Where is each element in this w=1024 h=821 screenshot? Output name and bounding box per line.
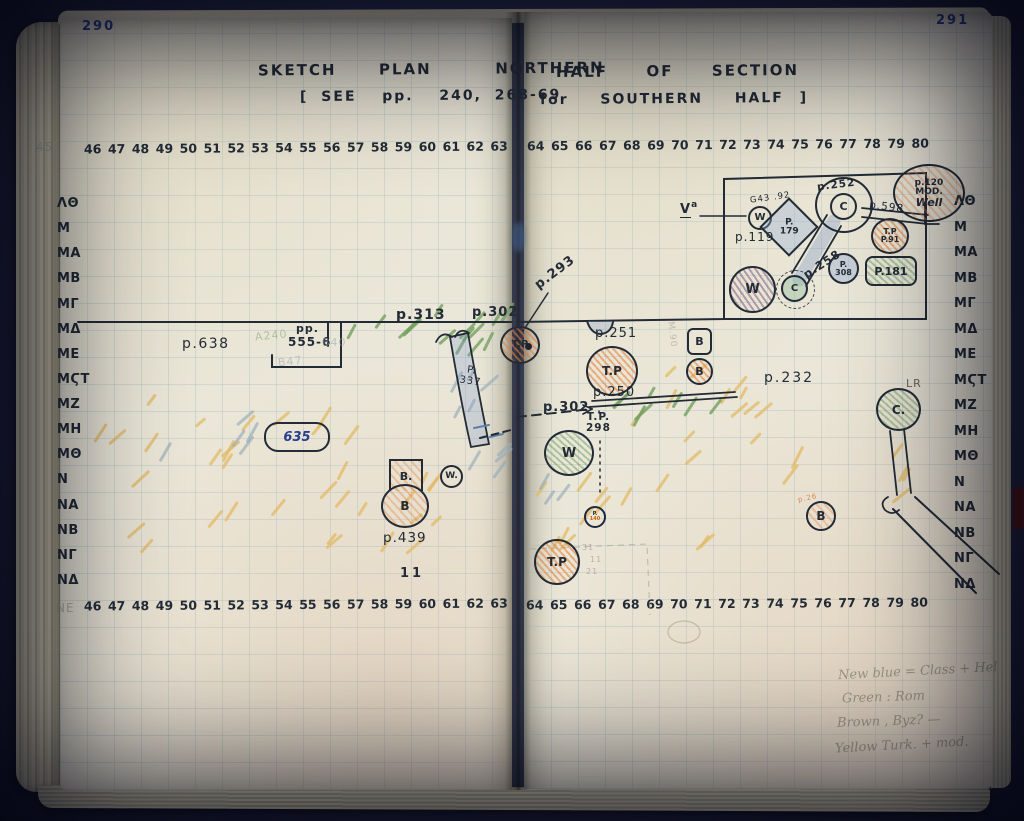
list-item: 46: [84, 598, 102, 613]
list-item: 60: [419, 139, 437, 154]
list-item: ΜΓ: [57, 297, 93, 312]
list-item: ΜΒ: [954, 271, 990, 286]
pencil-mark-11: 11: [590, 556, 602, 564]
pencil-label-b40: B40: [322, 337, 347, 349]
grid-columns-bottom-right: 6465666768697071727374757677787980: [526, 595, 928, 613]
list-item: 64: [527, 138, 545, 153]
list-item: 61: [443, 139, 461, 154]
list-item: 64: [526, 597, 544, 612]
tp-mid-label: T.P: [602, 365, 622, 377]
tick-marks-11: 11: [400, 567, 424, 581]
list-item: ΜΔ: [57, 322, 93, 337]
bookmark-sliver: [1013, 487, 1024, 529]
label-p232: p.232: [764, 371, 814, 386]
list-item: 65: [551, 138, 569, 153]
list-item: 54: [275, 140, 293, 155]
pencil-label-m90: M.90: [665, 321, 678, 348]
feature-tp-bottom: T.P: [534, 539, 580, 585]
c-lr-label: C.: [892, 404, 905, 416]
list-item: 74: [767, 137, 785, 152]
w-green-label: W: [562, 447, 576, 460]
grid-columns-top-right: 6465666768697071727374757677787980: [527, 136, 929, 154]
list-item: 77: [839, 136, 857, 151]
list-item: ΜϚΤ: [954, 373, 990, 388]
list-item: 72: [719, 137, 737, 152]
list-item: ΝΒ: [954, 526, 990, 541]
pencil-mark-21: 21: [586, 568, 598, 576]
feature-flask-body: B: [381, 484, 429, 528]
list-item: 69: [646, 596, 664, 611]
p140-line2: 140: [590, 517, 600, 522]
label-p337: P.337: [459, 365, 484, 389]
list-item: 71: [695, 137, 713, 152]
list-item: ΜΓ: [954, 296, 990, 311]
feature-p181: P.181: [865, 256, 917, 286]
c-small-label: C: [791, 284, 798, 294]
list-item: 57: [347, 140, 365, 155]
list-item: 62: [466, 596, 484, 611]
faint-column-45: 45: [36, 141, 53, 154]
blob-635-label: 635: [283, 431, 310, 444]
list-item: Μ: [954, 220, 990, 235]
page-number-right: 291: [936, 14, 969, 28]
list-item: 51: [203, 598, 221, 613]
feature-c-lr: C.: [876, 388, 921, 431]
list-item: 67: [598, 597, 616, 612]
list-item: ΝΔ: [57, 573, 93, 588]
list-item: ΜΑ: [954, 245, 990, 260]
b-right-label: B: [816, 510, 825, 522]
tp91-line2: P.91: [881, 236, 900, 244]
list-item: ΜϚΤ: [57, 372, 93, 387]
list-item: ΝΑ: [954, 500, 990, 515]
list-item: 47: [108, 141, 126, 156]
list-item: 54: [275, 597, 293, 612]
list-item: 60: [419, 596, 437, 611]
feature-c-small: C: [781, 275, 808, 302]
list-item: 52: [227, 140, 245, 155]
list-item: ΜΗ: [57, 422, 93, 437]
label-va: Va: [680, 201, 698, 217]
label-p119: p.119: [735, 231, 774, 244]
label-p439: p.439: [383, 531, 427, 545]
list-item: ΜΗ: [954, 424, 990, 439]
list-item: ΝΔ: [954, 577, 990, 592]
list-item: 55: [299, 597, 317, 612]
label-lr: LR: [906, 378, 922, 390]
list-item: 57: [347, 597, 365, 612]
list-item: 73: [742, 596, 760, 611]
list-item: 80: [910, 595, 928, 610]
feature-tp-p91: T.P P.91: [871, 218, 909, 254]
label-p251: p.251: [595, 327, 637, 341]
list-item: ΜΘ: [954, 449, 990, 464]
list-item: 72: [718, 596, 736, 611]
tp298-line2: 298: [586, 422, 611, 434]
list-item: 63: [490, 139, 508, 154]
list-item: 49: [156, 141, 174, 156]
grid-columns-bottom-left: 464748495051525354555657585960616263: [84, 596, 508, 614]
feature-w-big: W: [729, 266, 776, 313]
w-small-label: W.: [445, 472, 458, 481]
list-item: 79: [886, 595, 904, 610]
list-item: 70: [671, 137, 689, 152]
feature-tp-gutter: T.P: [500, 326, 540, 364]
notebook-photo: 290 291 SKETCH PLAN NORTHERN HALF OF SEC…: [0, 0, 1024, 821]
va-superscript: a: [691, 200, 698, 210]
tp-bottom-label: T.P: [547, 556, 567, 568]
list-item: 51: [203, 141, 221, 156]
list-item: 58: [371, 596, 389, 611]
feature-p140: P. 140: [584, 506, 606, 528]
list-item: 76: [814, 595, 832, 610]
diamond-label: P.179: [780, 218, 799, 236]
list-item: 53: [251, 140, 269, 155]
b-square-label: B: [695, 336, 703, 347]
feature-modern-well: p.120 MOD. Well: [893, 164, 965, 222]
p252-c-label: C: [839, 201, 847, 212]
list-item: 50: [180, 141, 198, 156]
list-item: 48: [132, 141, 150, 156]
list-item: 50: [180, 598, 198, 613]
label-p250: p.250: [593, 386, 635, 400]
flask-neck-label: B.: [400, 471, 413, 482]
gutter-dot: [525, 343, 532, 350]
pencil-mark-31: 31: [582, 544, 594, 552]
list-item: 75: [791, 136, 809, 151]
title-line1-left: SKETCH PLAN NORTHERN: [258, 58, 605, 79]
list-item: 74: [766, 596, 784, 611]
list-item: ΜΔ: [954, 322, 990, 337]
label-tp298: T.P.298: [586, 412, 611, 434]
feature-p252-cistern: C: [830, 193, 857, 220]
label-p337-line2: 337: [459, 374, 482, 388]
diamond-line2: 179: [780, 227, 799, 236]
list-item: Ν: [57, 472, 93, 487]
feature-b-right: B: [806, 501, 836, 531]
list-item: ΜΘ: [57, 447, 93, 462]
list-item: ΝΑ: [57, 498, 93, 513]
ink-smudge: [512, 222, 525, 252]
list-item: 66: [574, 597, 592, 612]
list-item: 70: [670, 596, 688, 611]
list-item: 49: [156, 598, 174, 613]
list-item: 62: [466, 139, 484, 154]
list-item: ΜΕ: [57, 347, 93, 362]
feature-b-square: B: [687, 328, 712, 355]
list-item: ΜΑ: [57, 246, 93, 261]
grid-rows-left: ΛΘΜΜΑΜΒΜΓΜΔΜΕΜϚΤΜΖΜΗΜΘΝΝΑΝΒΝΓΝΔ: [57, 196, 93, 588]
grid-columns-top-left: 464748495051525354555657585960616263: [84, 139, 508, 157]
list-item: 59: [395, 596, 413, 611]
list-item: 61: [443, 596, 461, 611]
p181-label: P.181: [874, 266, 907, 277]
list-item: 68: [622, 597, 640, 612]
feature-b-circle: B: [686, 358, 713, 385]
p308-line2: 308: [835, 269, 852, 277]
list-item: 52: [227, 597, 245, 612]
list-item: 69: [647, 137, 665, 152]
list-item: 65: [550, 597, 568, 612]
list-item: ΜΒ: [57, 271, 93, 286]
list-item: 56: [323, 597, 341, 612]
flask-body-label: B: [400, 500, 409, 512]
list-item: Μ: [57, 221, 93, 236]
list-item: 73: [743, 137, 761, 152]
grid-ruling-left: [60, 18, 512, 790]
label-p302-mid: p.302: [543, 401, 589, 415]
list-item: 77: [838, 595, 856, 610]
label-p302-top: p.302: [472, 306, 518, 320]
w-big-label: W: [745, 283, 759, 296]
pencil-label-b47: B47: [277, 355, 303, 369]
b-circle-label: B: [695, 366, 703, 377]
list-item: 80: [911, 136, 929, 151]
list-item: 67: [599, 138, 617, 153]
list-item: ΜΕ: [954, 347, 990, 362]
label-p638: p.638: [182, 337, 230, 352]
list-item: 55: [299, 140, 317, 155]
grid-rows-right: ΛΘΜΜΑΜΒΜΓΜΔΜΕΜϚΤΜΖΜΗΜΘΝΝΑΝΒΝΓΝΔ: [954, 194, 990, 592]
faint-row-ne: ΝΕ: [56, 602, 75, 615]
note-line2: Green : Rom: [842, 689, 925, 707]
list-item: 71: [694, 596, 712, 611]
list-item: Ν: [954, 475, 990, 490]
feature-blob-635: 635: [264, 422, 330, 452]
list-item: 47: [108, 598, 126, 613]
list-item: 58: [371, 139, 389, 154]
page-number-left: 290: [82, 20, 115, 34]
list-item: 78: [863, 136, 881, 151]
list-item: 48: [132, 598, 150, 613]
title-line2-right: for SOUTHERN HALF ]: [540, 90, 808, 108]
feature-w-green: W: [544, 430, 594, 476]
list-item: 66: [575, 138, 593, 153]
label-pp555-a: pp.: [296, 323, 319, 335]
title-line2-left: [ SEE pp. 240, 268-69: [300, 87, 561, 105]
feature-w-small: W.: [440, 465, 463, 488]
list-item: 53: [251, 597, 269, 612]
list-item: 63: [490, 596, 508, 611]
page-left: [60, 18, 512, 790]
book-gutter: [505, 12, 531, 790]
list-item: ΜΖ: [954, 398, 990, 413]
list-item: 68: [623, 138, 641, 153]
list-item: ΜΖ: [57, 397, 93, 412]
list-item: ΝΓ: [954, 551, 990, 566]
list-item: 78: [862, 595, 880, 610]
list-item: 56: [323, 140, 341, 155]
list-item: 46: [84, 141, 102, 156]
title-line1-right: HALF OF SECTION: [556, 61, 799, 81]
va-letter: V: [680, 202, 691, 218]
list-item: ΛΘ: [57, 196, 93, 211]
list-item: 76: [815, 136, 833, 151]
list-item: ΝΒ: [57, 523, 93, 538]
list-item: ΝΓ: [57, 548, 93, 563]
well-line3: Well: [916, 197, 942, 208]
list-item: 59: [395, 139, 413, 154]
list-item: 79: [887, 136, 905, 151]
label-p313: p.313: [396, 308, 446, 323]
list-item: 75: [790, 595, 808, 610]
